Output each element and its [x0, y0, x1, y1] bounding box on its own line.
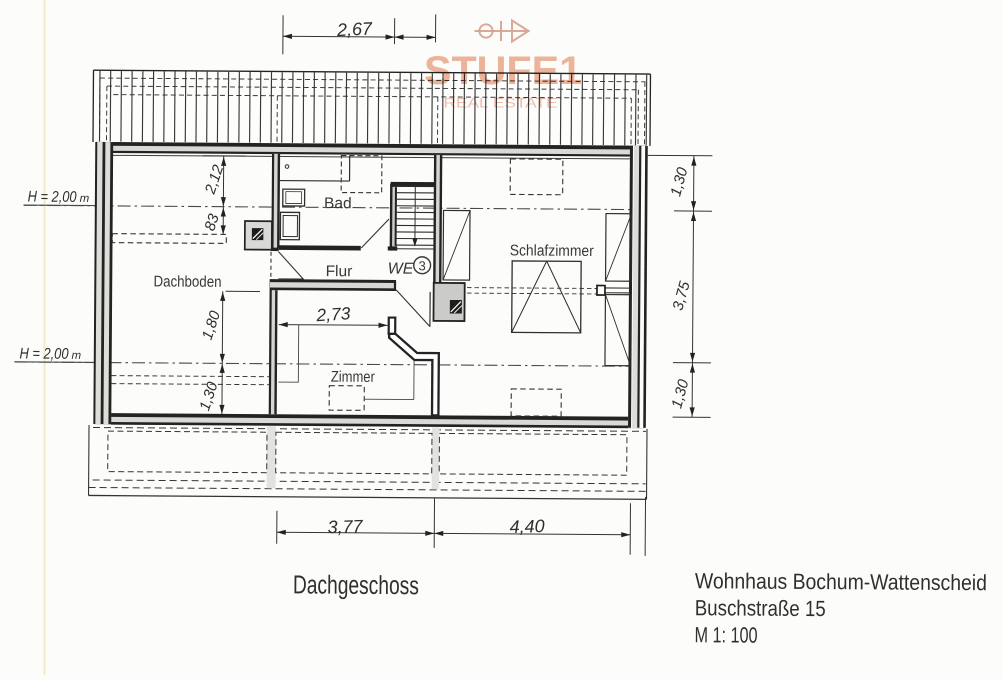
svg-text:m: m — [80, 193, 90, 205]
svg-text:Dachgeschoss: Dachgeschoss — [293, 569, 419, 600]
svg-text:WE: WE — [388, 261, 414, 278]
svg-text:Dachboden: Dachboden — [153, 273, 221, 290]
svg-text:Schlafzimmer: Schlafzimmer — [510, 242, 594, 260]
svg-text:Wohnhaus Bochum-Wattenscheid: Wohnhaus Bochum-Wattenscheid — [695, 568, 987, 595]
svg-text:m: m — [71, 350, 81, 362]
svg-text:STUFE1: STUFE1 — [424, 49, 582, 93]
svg-text:2,67: 2,67 — [336, 18, 374, 40]
svg-text:Buschstraße 15: Buschstraße 15 — [695, 595, 826, 621]
svg-text:Bad: Bad — [324, 195, 352, 212]
svg-text:Flur: Flur — [326, 263, 353, 280]
svg-text:4,40: 4,40 — [509, 516, 545, 537]
svg-text:2,73: 2,73 — [315, 303, 352, 325]
svg-text:3: 3 — [418, 258, 425, 273]
svg-text:H = 2,00: H = 2,00 — [19, 345, 68, 362]
svg-text:3,77: 3,77 — [327, 516, 364, 537]
svg-text:Zimmer: Zimmer — [331, 369, 375, 386]
svg-text:H = 2,00: H = 2,00 — [28, 189, 77, 206]
svg-text:M 1: 100: M 1: 100 — [694, 622, 757, 647]
svg-text:REAL ESTATE: REAL ESTATE — [444, 96, 558, 111]
